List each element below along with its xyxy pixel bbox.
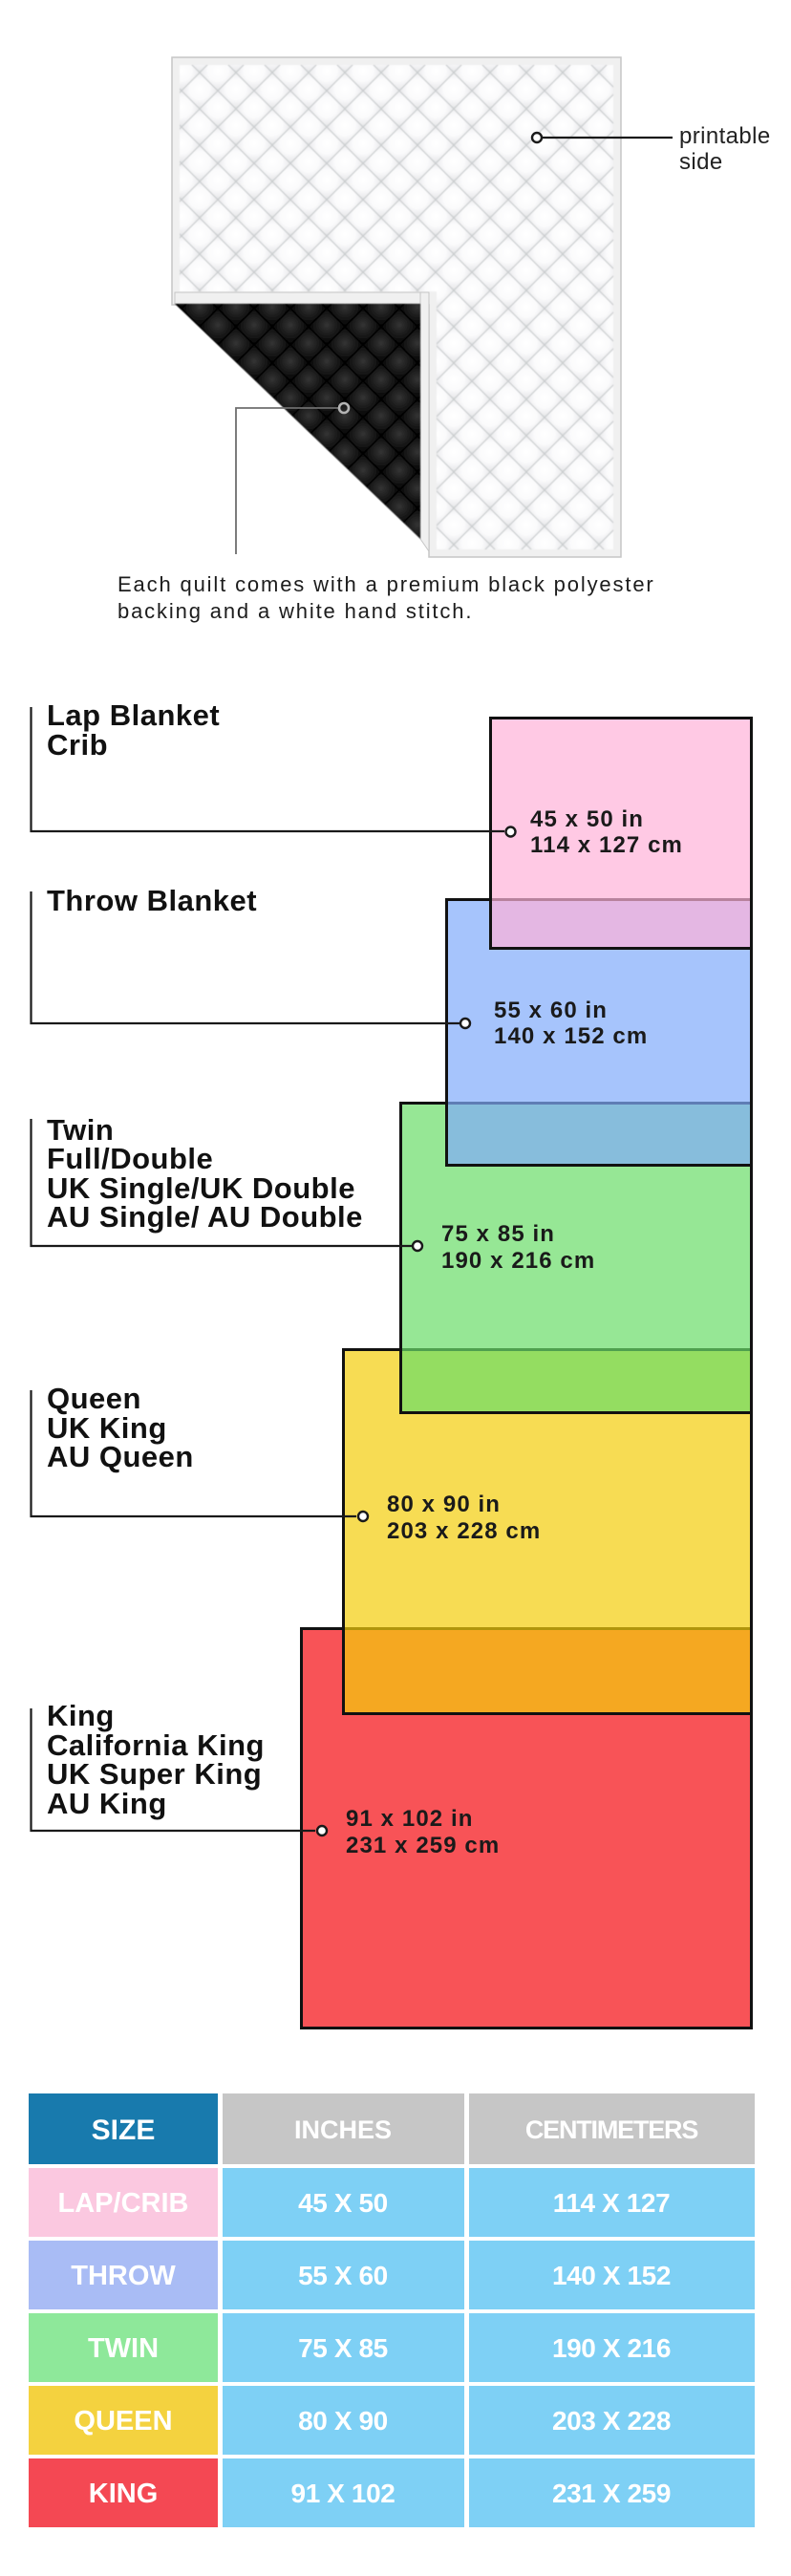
svg-text:140 x 152 cm: 140 x 152 cm <box>494 1023 648 1049</box>
svg-text:75 x 85 in: 75 x 85 in <box>441 1221 555 1247</box>
svg-text:45 x 50 in: 45 x 50 in <box>530 806 644 832</box>
svg-text:55 X 60: 55 X 60 <box>298 2261 388 2290</box>
svg-text:231 X 259: 231 X 259 <box>552 2479 671 2508</box>
svg-text:AU Queen: AU Queen <box>47 1440 194 1473</box>
svg-text:231 x 259 cm: 231 x 259 cm <box>346 1833 500 1858</box>
svg-text:203 X 228: 203 X 228 <box>552 2406 671 2436</box>
svg-text:side: side <box>679 149 723 175</box>
svg-text:AU Single/ AU Double: AU Single/ AU Double <box>47 1200 363 1234</box>
svg-text:Each quilt comes with a premiu: Each quilt comes with a premium black po… <box>118 572 655 596</box>
svg-text:Lap Blanket: Lap Blanket <box>47 698 220 732</box>
svg-text:Queen: Queen <box>47 1382 141 1415</box>
svg-text:LAP/CRIB: LAP/CRIB <box>58 2188 189 2219</box>
svg-text:Full/Double: Full/Double <box>47 1142 213 1175</box>
svg-text:80 x 90 in: 80 x 90 in <box>387 1492 501 1517</box>
svg-text:UK Super King: UK Super King <box>47 1757 262 1791</box>
svg-text:INCHES: INCHES <box>294 2115 392 2144</box>
svg-text:203 x 228 cm: 203 x 228 cm <box>387 1518 541 1544</box>
svg-text:QUEEN: QUEEN <box>74 2406 172 2436</box>
svg-text:Throw Blanket: Throw Blanket <box>47 884 257 917</box>
svg-text:91 x 102 in: 91 x 102 in <box>346 1806 474 1832</box>
svg-text:King: King <box>47 1699 115 1732</box>
svg-text:CENTIMETERS: CENTIMETERS <box>525 2115 698 2144</box>
svg-text:THROW: THROW <box>71 2261 176 2291</box>
svg-text:75 X 85: 75 X 85 <box>298 2333 388 2363</box>
svg-text:45 X 50: 45 X 50 <box>298 2188 388 2218</box>
svg-text:AU King: AU King <box>47 1787 167 1820</box>
svg-text:55 x 60 in: 55 x 60 in <box>494 998 608 1023</box>
svg-text:Crib: Crib <box>47 728 108 762</box>
svg-text:190 X 216: 190 X 216 <box>552 2333 671 2363</box>
svg-text:TWIN: TWIN <box>88 2333 159 2364</box>
svg-text:KING: KING <box>89 2479 159 2509</box>
svg-text:SIZE: SIZE <box>92 2114 156 2146</box>
svg-text:114 X 127: 114 X 127 <box>553 2188 671 2218</box>
svg-text:backing and a white hand stitc: backing and a white hand stitch. <box>118 599 473 623</box>
svg-text:80 X 90: 80 X 90 <box>298 2406 388 2436</box>
svg-text:printable: printable <box>679 123 771 149</box>
svg-text:114 x 127 cm: 114 x 127 cm <box>530 832 683 858</box>
svg-text:91 X 102: 91 X 102 <box>291 2479 395 2508</box>
svg-text:190 x 216 cm: 190 x 216 cm <box>441 1248 595 1274</box>
svg-text:140 X 152: 140 X 152 <box>552 2261 671 2290</box>
